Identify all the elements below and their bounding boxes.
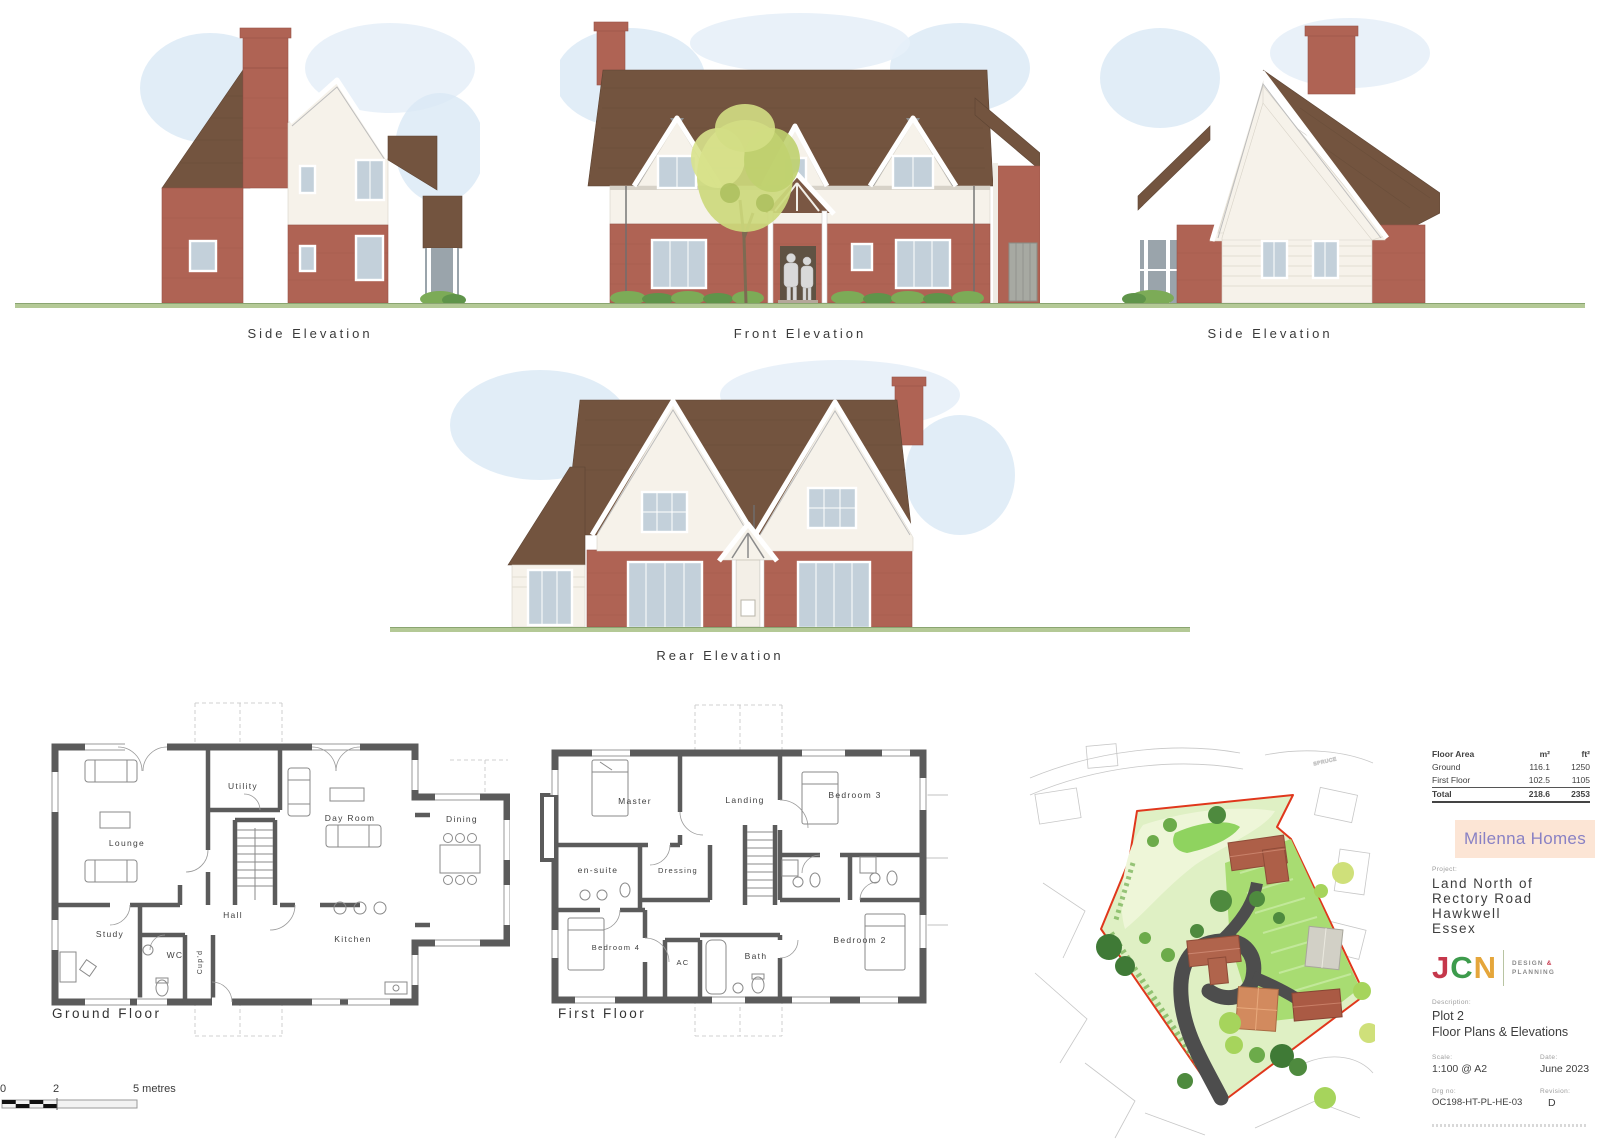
chimney — [240, 28, 291, 188]
porch — [423, 196, 462, 303]
scale-value: 1:100 @ A2 — [1432, 1063, 1487, 1075]
contact-fineprint — [1432, 1124, 1588, 1127]
ground-line-rear — [390, 627, 1190, 632]
room-label-kitchen: Kitchen — [334, 934, 371, 944]
description-label: Description: — [1432, 999, 1471, 1006]
area-table-row-first: First Floor 102.5 1105 — [1432, 774, 1590, 788]
description-line1: Plot 2 — [1432, 1009, 1464, 1023]
room-label-dining: Dining — [446, 814, 478, 824]
site-plan: SPRUCE — [1025, 733, 1375, 1142]
room-label-ac: AC — [676, 958, 689, 967]
scale-bar-0: 0 — [0, 1083, 6, 1095]
drawing-sheet: Side Elevation Front Elevation Side Elev… — [0, 0, 1600, 1142]
scale-bar-5: 5 metres — [133, 1083, 176, 1095]
caption-first-floor: First Floor — [558, 1006, 646, 1021]
elevation-front — [560, 8, 1040, 308]
room-label-cupboard: Cup'd — [197, 950, 204, 975]
room-label-utility: Utility — [228, 781, 258, 791]
description-line2: Floor Plans & Elevations — [1432, 1025, 1568, 1039]
ground-line-top — [15, 303, 1585, 308]
date-value: June 2023 — [1540, 1063, 1589, 1075]
room-label-hall: Hall — [223, 910, 243, 920]
plan-ground-floor: Lounge Utility Day Room Dining Hall Stud… — [30, 700, 510, 1040]
room-label-en-suite: en-suite — [578, 865, 619, 875]
date-label: Date: — [1540, 1054, 1558, 1061]
elevation-side-left — [140, 8, 480, 308]
caption-rear-elevation: Rear Elevation — [420, 648, 1020, 663]
left-wing — [508, 467, 585, 627]
caption-ground-floor: Ground Floor — [52, 1006, 162, 1021]
room-label-dressing: Dressing — [658, 866, 698, 875]
chimney-breast — [542, 795, 556, 860]
caption-side-elevation-right: Side Elevation — [1100, 326, 1440, 341]
revision-label: Revision: — [1540, 1088, 1570, 1095]
logo-divider — [1503, 950, 1504, 986]
floor-area-table: Floor Area m² ft² Ground 116.1 1250 Firs… — [1432, 748, 1590, 803]
room-label-lounge: Lounge — [109, 838, 145, 848]
chimney — [1305, 26, 1358, 94]
dimension-ticks — [923, 795, 948, 925]
elevation-rear — [420, 355, 1020, 635]
street-label: SPRUCE — [1313, 756, 1338, 767]
elevation-side-right — [1100, 8, 1440, 308]
brand-name: Milenna Homes — [1464, 829, 1586, 849]
room-label-wc: WC — [167, 950, 184, 960]
brand-box: Milenna Homes — [1455, 820, 1595, 858]
caption-front-elevation: Front Elevation — [560, 326, 1040, 341]
room-label-bedroom-3: Bedroom 3 — [828, 790, 881, 800]
caption-side-elevation-left: Side Elevation — [140, 326, 480, 341]
area-table-row-total: Total 218.6 2353 — [1432, 788, 1590, 803]
room-label-day-room: Day Room — [325, 813, 376, 823]
drg-no-label: Drg no: — [1432, 1088, 1456, 1095]
drg-no-value: OC198-HT-PL-HE-03 — [1432, 1097, 1522, 1108]
logo-tagline: DESIGN & PLANNING — [1512, 959, 1555, 977]
area-table-row-ground: Ground 116.1 1250 — [1432, 761, 1590, 774]
area-table-header: Floor Area m² ft² — [1432, 748, 1590, 761]
project-label: Project: — [1432, 866, 1457, 873]
room-label-landing: Landing — [725, 795, 764, 805]
project-address: Land North of Rectory Road Hawkwell Esse… — [1432, 876, 1533, 936]
scale-label: Scale: — [1432, 1054, 1452, 1061]
scale-bar: 0 2 5 metres — [0, 1078, 220, 1128]
plan-first-floor: Master Landing Bedroom 3 en-suite Dressi… — [530, 700, 950, 1040]
room-label-bedroom-2: Bedroom 2 — [833, 935, 886, 945]
scale-bar-2: 2 — [53, 1083, 59, 1095]
jcn-logo: J C N DESIGN & PLANNING — [1432, 950, 1555, 986]
room-label-master: Master — [618, 796, 652, 806]
room-label-study: Study — [96, 929, 124, 939]
room-label-bedroom-4: Bedroom 4 — [592, 943, 640, 952]
room-label-bath: Bath — [745, 951, 768, 961]
revision-value: D — [1548, 1097, 1556, 1109]
